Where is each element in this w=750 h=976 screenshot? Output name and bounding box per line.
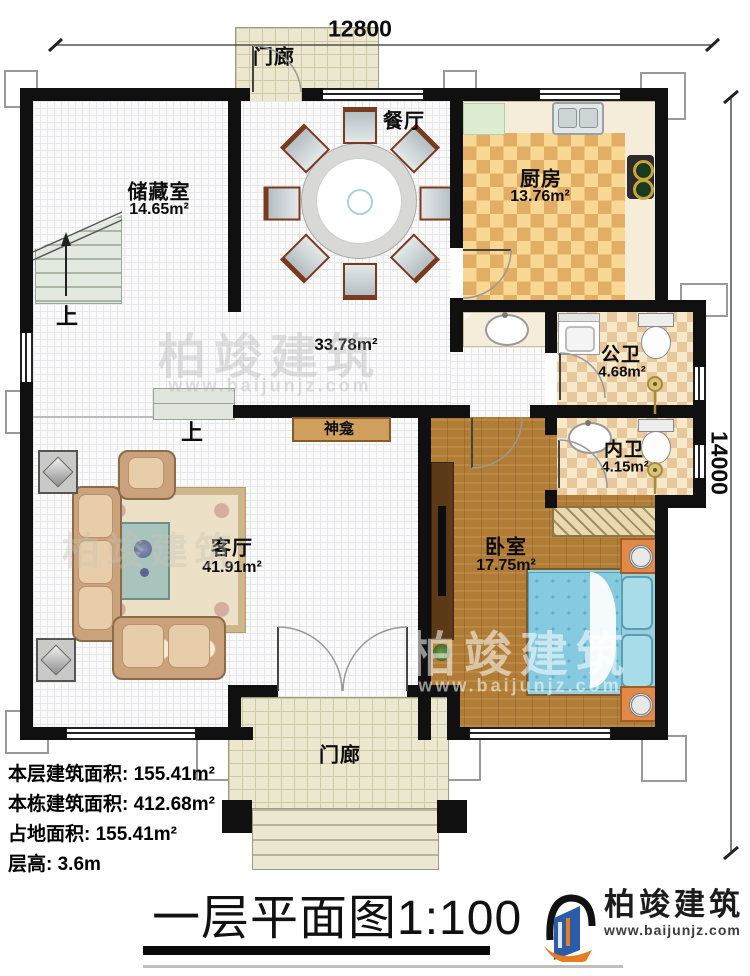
brand-logo-icon bbox=[540, 888, 598, 962]
nightstand bbox=[620, 538, 660, 574]
pilaster bbox=[641, 735, 687, 782]
info-panel: 本层建筑面积: 155.41m² 本栋建筑面积: 412.68m² 占地面积: … bbox=[8, 760, 215, 880]
wall-segment bbox=[463, 88, 540, 101]
sofa-cushion bbox=[168, 624, 210, 668]
window bbox=[470, 727, 610, 740]
window bbox=[693, 445, 706, 478]
plant bbox=[433, 644, 450, 661]
sink-basin bbox=[579, 108, 598, 128]
sink-basin bbox=[558, 108, 577, 128]
table-decor bbox=[134, 540, 152, 558]
wall-segment bbox=[655, 508, 668, 740]
wall-segment bbox=[418, 405, 470, 418]
page-title: 一层平面图1:100 bbox=[152, 878, 522, 948]
room-label-top-porch: 门廊 bbox=[253, 41, 295, 70]
wall-segment bbox=[545, 418, 557, 435]
room-label-public-bath: 公卫 bbox=[601, 340, 641, 367]
nightstand bbox=[620, 686, 660, 722]
washer-panel bbox=[559, 314, 599, 322]
wall-segment bbox=[655, 495, 706, 508]
porch-steps bbox=[252, 808, 439, 870]
tv-cabinet bbox=[431, 462, 454, 640]
side-table-lamp bbox=[40, 644, 71, 675]
wall-segment bbox=[655, 88, 668, 312]
porch-pillar bbox=[222, 800, 252, 833]
info-label: 占地面积: bbox=[8, 824, 90, 845]
toilet bbox=[641, 326, 671, 359]
wall-segment bbox=[20, 88, 33, 333]
window bbox=[67, 727, 195, 740]
sofa-cushion bbox=[78, 586, 113, 630]
bed bbox=[526, 568, 660, 696]
wall-segment bbox=[693, 312, 706, 367]
pillow bbox=[621, 634, 653, 688]
kitchen-sink bbox=[552, 102, 604, 135]
floor-plan-canvas: 12800 14000 门廊 餐厅 厨房 13.76m² 储藏室 14.65m²… bbox=[0, 0, 750, 976]
info-line: 层高: 3.6m bbox=[8, 850, 215, 880]
wall-segment bbox=[228, 685, 241, 740]
steps-up-label: 上 bbox=[181, 415, 203, 447]
sofa-cushion bbox=[122, 624, 164, 668]
side-table bbox=[36, 638, 76, 682]
wall-segment bbox=[530, 405, 706, 418]
info-label: 本栋建筑面积: bbox=[8, 794, 128, 815]
kitchen-floor bbox=[463, 133, 625, 300]
title-underline bbox=[143, 946, 490, 955]
pillow bbox=[621, 576, 653, 630]
table-decor bbox=[140, 568, 149, 577]
wall-segment bbox=[241, 685, 278, 697]
wall-segment bbox=[545, 490, 557, 508]
wall-segment bbox=[447, 727, 470, 740]
coffee-table bbox=[118, 522, 170, 600]
info-label: 层高: bbox=[8, 854, 52, 875]
dimension-width: 12800 bbox=[328, 16, 392, 43]
sofa-cushion bbox=[78, 494, 113, 538]
info-label: 本层建筑面积: bbox=[8, 764, 128, 785]
room-label-living: 客厅 bbox=[211, 532, 253, 561]
info-value: 412.68m² bbox=[134, 794, 215, 815]
room-area-living: 41.91m² bbox=[202, 559, 262, 577]
title-scale: 1:100 bbox=[397, 892, 522, 945]
side-table-lamp bbox=[42, 456, 73, 487]
sofa-cushion bbox=[78, 540, 113, 584]
lazy-susan bbox=[347, 189, 373, 215]
side-table bbox=[38, 450, 78, 494]
wall-segment bbox=[20, 727, 67, 740]
wall-segment bbox=[228, 88, 241, 312]
armchair-cushion bbox=[128, 457, 164, 489]
room-area-bedroom: 17.75m² bbox=[476, 557, 536, 575]
room-area-private-bath: 4.15m² bbox=[601, 459, 649, 476]
info-value: 3.6m bbox=[58, 854, 101, 875]
room-area-storage: 14.65m² bbox=[129, 201, 189, 219]
burner bbox=[633, 160, 654, 181]
gas-stove bbox=[627, 155, 654, 199]
pilaster bbox=[447, 733, 481, 781]
info-line: 占地面积: 155.41m² bbox=[8, 820, 215, 850]
faucet bbox=[585, 420, 591, 426]
wall-segment bbox=[545, 312, 557, 353]
brand-name: 柏竣建筑 bbox=[604, 888, 744, 922]
toilet-tank bbox=[638, 313, 674, 327]
wall-segment bbox=[450, 300, 655, 312]
room-label-private-bath: 内卫 bbox=[604, 435, 644, 462]
wall-segment bbox=[407, 685, 447, 697]
window bbox=[323, 88, 423, 101]
title-underline-thin bbox=[143, 965, 623, 968]
stairs-up-label: 上 bbox=[56, 299, 78, 331]
room-area-public-bath: 4.68m² bbox=[598, 364, 646, 381]
title-text: 一层平面图 bbox=[152, 892, 397, 945]
wall-segment bbox=[655, 300, 706, 312]
nightstand-handle bbox=[629, 693, 653, 717]
wall-segment bbox=[302, 88, 323, 101]
window bbox=[540, 88, 620, 101]
wash-basin bbox=[485, 314, 529, 346]
dimension-height: 14000 bbox=[706, 431, 733, 495]
room-area-kitchen: 13.76m² bbox=[510, 188, 570, 206]
room-label-dining: 餐厅 bbox=[383, 105, 425, 134]
room-label-bedroom: 卧室 bbox=[485, 531, 527, 560]
brand-text-block: 柏竣建筑 www.baijunjz.com bbox=[604, 888, 744, 938]
tv bbox=[438, 506, 446, 596]
dining-chair bbox=[343, 263, 377, 300]
wall-segment bbox=[20, 88, 250, 101]
info-line: 本栋建筑面积: 412.68m² bbox=[8, 790, 215, 820]
wardrobe bbox=[552, 506, 659, 537]
nightstand-handle bbox=[629, 545, 653, 569]
brand-url: www.baijunjz.com bbox=[604, 922, 744, 938]
washing-machine bbox=[558, 313, 600, 355]
washer-lid bbox=[565, 326, 595, 352]
room-label-bottom-porch: 门廊 bbox=[319, 739, 361, 768]
cutting-board bbox=[463, 103, 505, 135]
dining-chair bbox=[264, 187, 301, 221]
dining-chair bbox=[343, 107, 377, 144]
brand-logo: 柏竣建筑 www.baijunjz.com bbox=[540, 888, 744, 962]
wall-segment bbox=[20, 382, 33, 740]
info-value: 155.41m² bbox=[96, 824, 177, 845]
faucet bbox=[502, 312, 508, 318]
window bbox=[693, 367, 706, 400]
wall-segment bbox=[195, 727, 253, 740]
wall-segment bbox=[450, 88, 463, 248]
porch-pillar bbox=[437, 800, 467, 833]
burner bbox=[633, 179, 654, 200]
wall-segment bbox=[610, 727, 668, 740]
room-area-hall: 33.78m² bbox=[314, 335, 377, 355]
shrine-label: 神龛 bbox=[324, 418, 354, 439]
info-line: 本层建筑面积: 155.41m² bbox=[8, 760, 215, 790]
window bbox=[20, 333, 33, 382]
info-value: 155.41m² bbox=[134, 764, 215, 785]
